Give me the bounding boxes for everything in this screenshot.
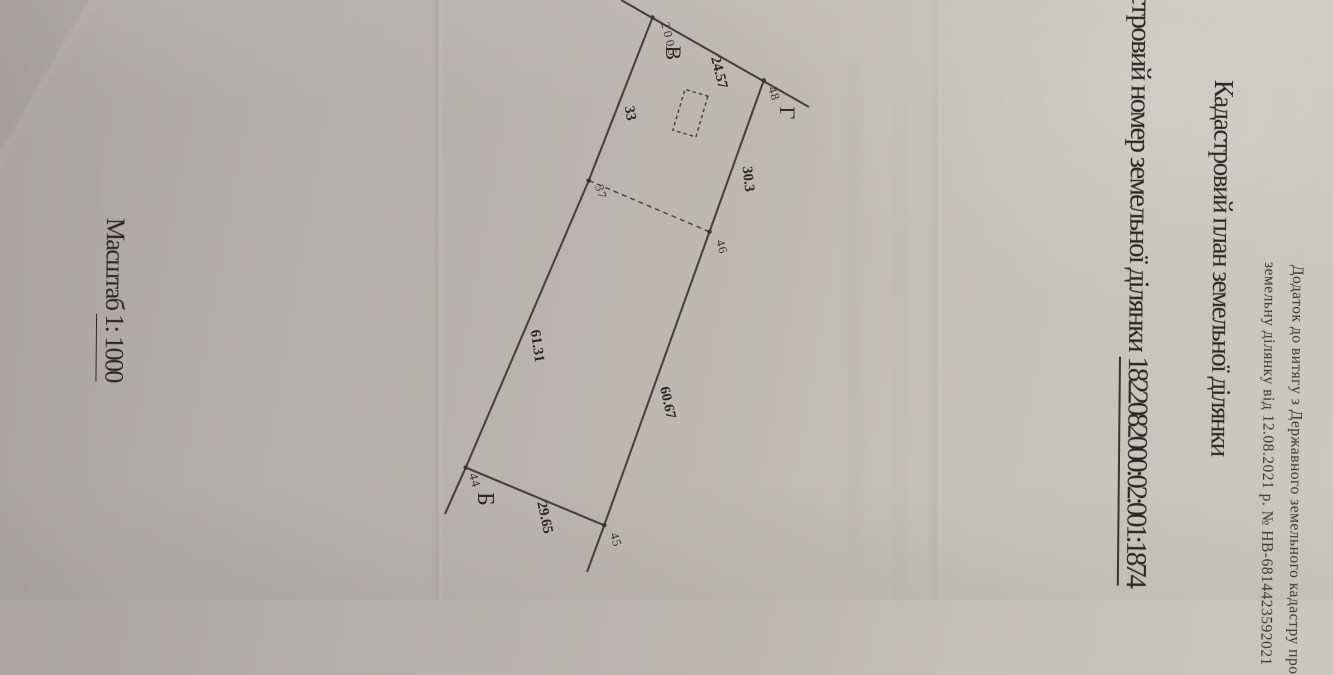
svg-text:29.65: 29.65 — [533, 500, 555, 535]
svg-text:61.31: 61.31 — [527, 329, 547, 364]
svg-text:В: В — [661, 46, 686, 61]
svg-text:Г: Г — [775, 107, 800, 120]
svg-text:37: 37 — [592, 183, 609, 201]
svg-text:60.67: 60.67 — [656, 385, 679, 420]
svg-text:Б: Б — [472, 492, 498, 506]
svg-text:33: 33 — [621, 105, 639, 122]
svg-text:44: 44 — [466, 471, 483, 489]
svg-text:45: 45 — [607, 531, 624, 549]
svg-text:46: 46 — [713, 238, 730, 256]
svg-text:48: 48 — [765, 85, 783, 103]
svg-text:30.3: 30.3 — [739, 166, 758, 193]
